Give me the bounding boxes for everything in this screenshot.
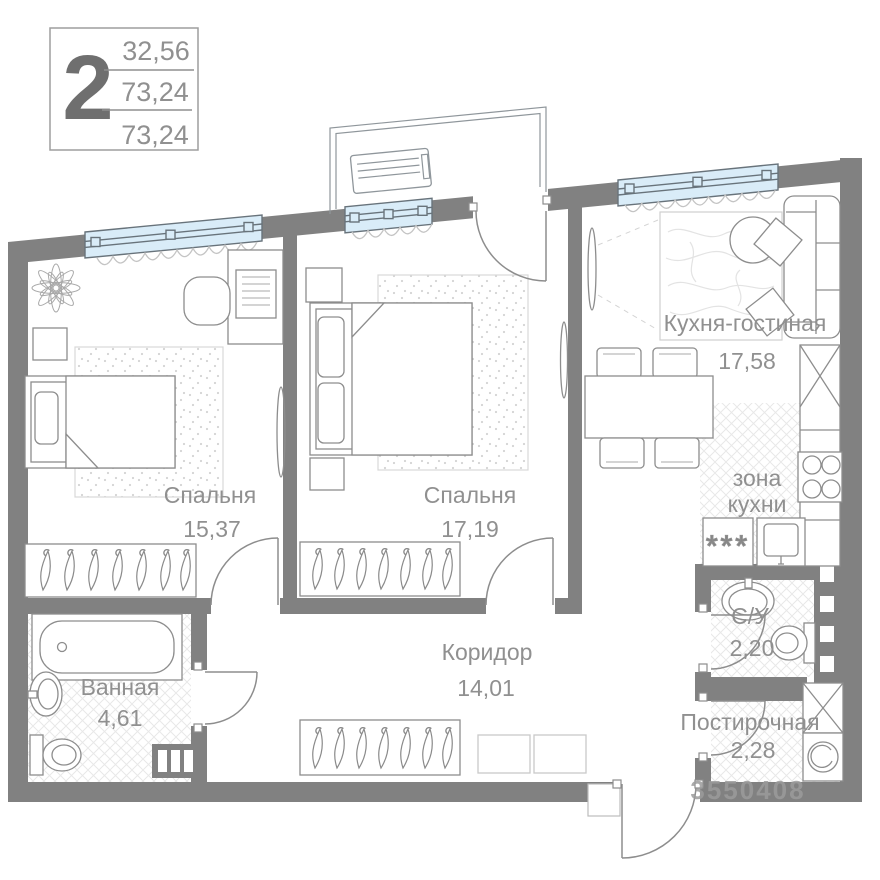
kitchen-sink [757, 518, 805, 566]
laundry-area: 2,28 [731, 737, 776, 763]
wc-area: 2,20 [730, 635, 775, 661]
wall-corridor-1 [8, 598, 211, 614]
bed-double [310, 303, 472, 455]
watermark: 3550408 [690, 775, 805, 805]
wall-corridor-3 [555, 598, 582, 614]
corridor-box [534, 735, 586, 773]
washing-machine [803, 733, 843, 781]
corridor-box [478, 735, 530, 773]
dining-chair [653, 348, 697, 378]
desk-chair [184, 277, 230, 325]
entrance-opening [620, 782, 700, 802]
desk [228, 250, 283, 344]
nightstand-bottom [310, 458, 344, 490]
dining-chair [597, 348, 641, 378]
bedroom1-label: Спальня [164, 482, 256, 508]
area-value-1: 32,56 [122, 36, 190, 66]
wardrobe-bedroom2 [300, 542, 460, 596]
bedroom1-area: 15,37 [183, 516, 241, 542]
dishwasher-symbol: *** [706, 530, 750, 563]
stove [798, 452, 842, 502]
kitchen-living-area: 17,58 [718, 348, 776, 374]
floor-plan: *** [0, 0, 880, 880]
wall-wc-laundry [695, 677, 807, 701]
bed-single [25, 376, 175, 468]
bedroom2-area: 17,19 [441, 516, 499, 542]
wall-corridor-2 [280, 598, 486, 614]
dining-table [585, 376, 713, 438]
bathroom-area: 4,61 [98, 705, 143, 731]
corridor-label: Коридор [442, 639, 533, 665]
bedroom2-label: Спальня [424, 482, 516, 508]
corridor-area: 14,01 [457, 675, 515, 701]
dishwasher: *** [703, 518, 753, 566]
wall-bedroom2-kitchen [568, 203, 582, 614]
area-value-3: 73,24 [121, 120, 189, 150]
area-value-2: 73,24 [121, 77, 189, 107]
left-wall [8, 242, 28, 802]
wardrobe-bedroom1 [25, 544, 196, 597]
entrance-landing [588, 784, 620, 816]
bathroom-grille [152, 744, 194, 778]
dining-chair [655, 438, 699, 468]
kitchen-zone-label-line1: зона [733, 465, 782, 491]
info-box: 2 32,56 73,24 73,24 [50, 28, 198, 150]
dining-chair [600, 438, 644, 468]
bathroom-label: Ванная [81, 674, 160, 700]
bathtub [32, 614, 182, 680]
rooms-count: 2 [62, 37, 113, 139]
kitchen-zone-label-line2: кухни [728, 491, 787, 517]
laundry-label: Постирочная [680, 709, 819, 735]
wc-label: С/У [731, 603, 769, 629]
kitchen-living-label: Кухня-гостиная [664, 310, 827, 336]
nightstand-top [306, 268, 342, 302]
wardrobe-corridor [300, 720, 460, 775]
nightstand [33, 328, 67, 360]
ac-unit [350, 148, 431, 193]
